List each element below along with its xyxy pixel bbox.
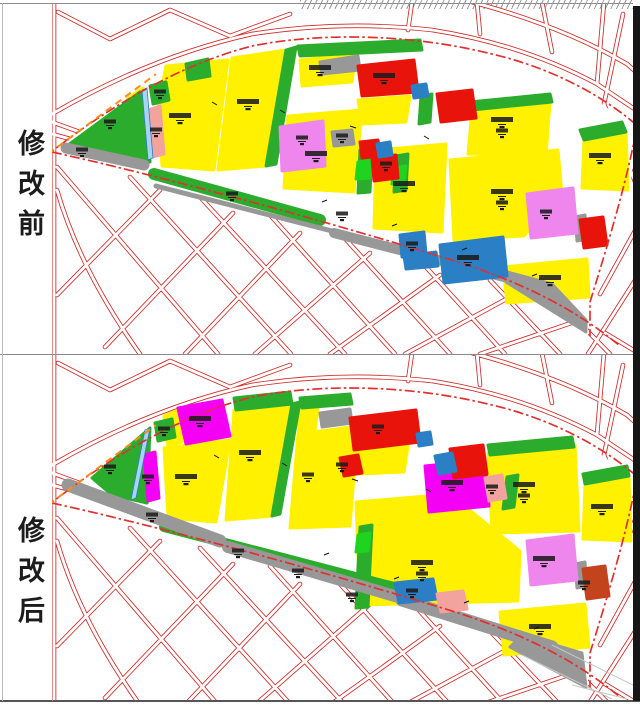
frame-left-line [2,3,3,701]
map-after [52,355,633,700]
frame-bottom-line [0,700,640,702]
right-edge-black-bar [633,6,640,701]
map-before [52,4,633,354]
before-panel-label: 修改前 [9,129,49,249]
plan-comparison-sheet: 修改前 修改后 [0,0,640,707]
after-panel-label: 修改后 [9,516,49,636]
